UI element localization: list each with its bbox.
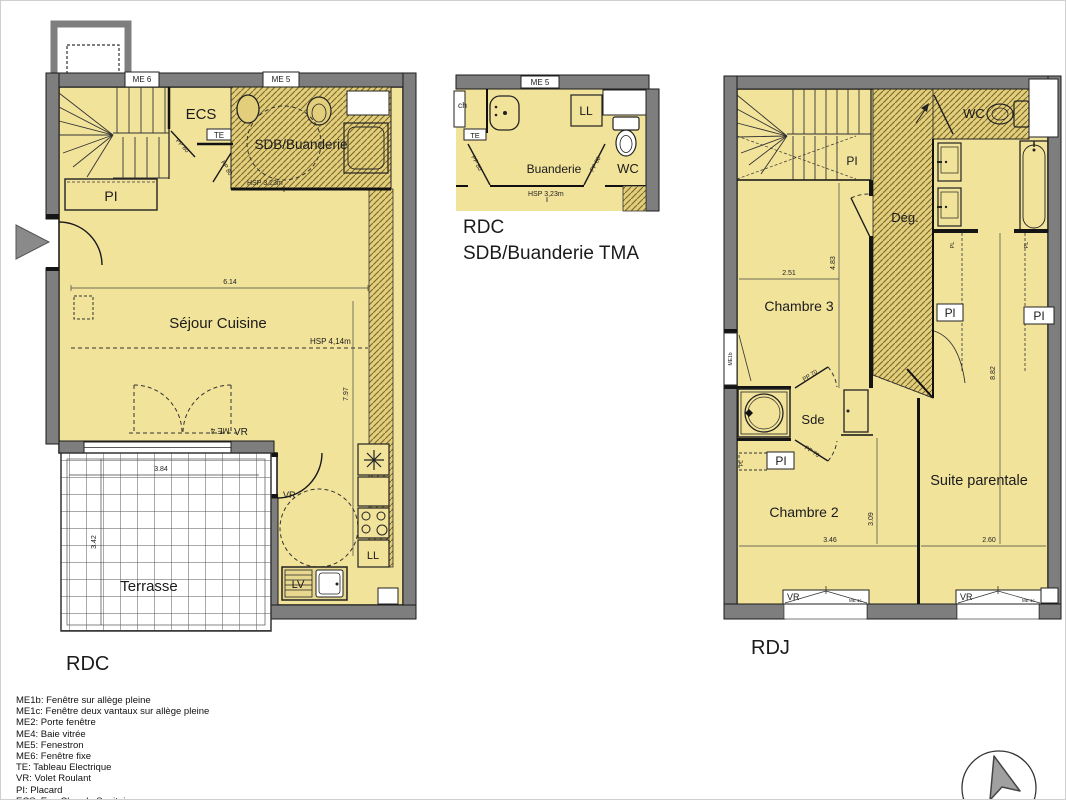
wc-tma-label: WC [617,161,639,176]
me1c2-label: ME 1c [1022,598,1036,603]
dim-3-46: 3.46 [823,537,837,544]
window-me6: ME 6 [125,72,159,87]
pl-sde-label: PL [739,460,745,466]
window-me5: ME 5 [263,72,299,87]
chambre3-label: Chambre 3 [764,298,833,314]
placard2-label: PI [1033,309,1044,323]
ll-tma-label: LL [579,104,593,118]
dim-8-82: 8.82 [990,366,997,380]
chambre2-label: Chambre 2 [769,504,838,520]
window-vr-2: VR ME 1c [956,586,1041,619]
pi-sde-label: PI [775,454,786,468]
toilet [307,97,331,125]
annex-box [54,24,128,81]
cooktop [358,508,389,538]
wall-right [646,89,659,211]
te-label: TE [214,131,224,140]
window-bay-me4 [84,442,231,453]
ll-label: LL [367,550,379,562]
title-rdc: RDC [66,653,109,676]
legend-item: ME2: Porte fenêtre [16,717,209,728]
title-tma-floor: RDC [463,217,504,239]
dim-2-60: 2.60 [982,537,996,544]
me1b-label: ME1b [728,352,734,365]
dim-2-51: 2.51 [782,270,796,277]
legend-item: ME5: Fenestron [16,740,209,751]
clipped-ch-label: ch [458,100,467,110]
legend-item: ME4: Baie vitrée [16,729,209,740]
hatch-corridor [873,89,933,398]
legend-item: ME1b: Fenêtre sur allège pleine [16,695,209,706]
window-bay-top-right [1029,79,1058,137]
hsp-tma-label: HSP 3,23m [528,191,564,198]
corner-notch [1041,588,1058,603]
window-bay [603,90,646,115]
terrasse: Terrasse 3.84 3.42 [61,453,271,631]
te-tma-label: TE [470,131,480,140]
pi-stair-label: PI [846,154,857,168]
title-tma-name: SDB/Buanderie TMA [463,243,639,265]
window-vr-1: VR ME 1c [783,586,869,619]
terrasse-label: Terrasse [120,578,178,595]
me6-label: ME 6 [133,75,152,84]
entrance-arrow [16,225,49,259]
legend: ME1b: Fenêtre sur allège pleine ME1c: Fe… [16,695,209,800]
vr-bay-label: VR [234,427,248,438]
vr1-label: VR [787,592,800,602]
legend-item: ECS: Eau Chaude Sanitaire [16,796,209,800]
buanderie-label: Buanderie [527,162,582,176]
legend-item: ME1c: Fenêtre deux vantaux sur allège pl… [16,706,209,717]
sejour-label: Séjour Cuisine [169,315,267,332]
vr2-label: VR [960,592,973,602]
pl-bath1-label: PL [950,242,956,249]
plan-rdc: ME 6 ME 5 ECS [1,1,441,696]
dim-6-14: 6.14 [223,279,237,286]
fridge-asterisk-icon [364,450,384,470]
te-box-tma: TE [464,129,486,140]
legend-item: PI: Placard [16,785,209,796]
dim-3-84: 3.84 [154,466,168,473]
title-rdj: RDJ [751,637,790,660]
dim-4-83: 4.83 [830,256,837,270]
me1c1-label: ME 1c [849,598,863,603]
hsp-sdb-label: HSP 3,23m [247,180,283,187]
closet-pi: PI [65,179,157,210]
shower [738,389,790,437]
legend-item: ME6: Fenêtre fixe [16,751,209,762]
hsp-sejour-label: HSP 4,14m [310,337,351,346]
hatch-tma [623,186,646,211]
pi-label: PI [104,188,117,204]
me5-tma-label: ME 5 [531,78,550,87]
counter [358,477,389,506]
ecs-label: ECS [186,106,217,123]
north-arrow [941,731,1066,800]
sde-label: Sde [801,412,824,427]
plan-rdj: ME1b PI Chamb [701,61,1066,686]
dim-7-97: 7.97 [343,387,350,401]
legend-item: TE: Tableau Electrique [16,762,209,773]
lv-label: LV [292,579,305,591]
north-arrow-icon [990,756,1020,800]
window-me5-tma: ME 5 [521,76,559,88]
me5-label: ME 5 [272,75,291,84]
dim-3-42: 3.42 [91,535,98,549]
wall-c2-suite [917,398,920,604]
placard1-label: Pl [945,306,956,320]
deg-label: Dég. [891,210,918,225]
me4-label: ME 4 [210,426,229,435]
floor-plan-sheet: ME 6 ME 5 ECS [0,0,1066,800]
dim-3-09: 3.09 [868,512,875,526]
washer-tma: LL [571,95,602,126]
suite-label: Suite parentale [930,473,1028,489]
wc-rdj-label: WC [963,106,985,121]
sdb-label: SDB/Buanderie [254,137,347,152]
legend-item: VR: Volet Roulant [16,773,209,784]
